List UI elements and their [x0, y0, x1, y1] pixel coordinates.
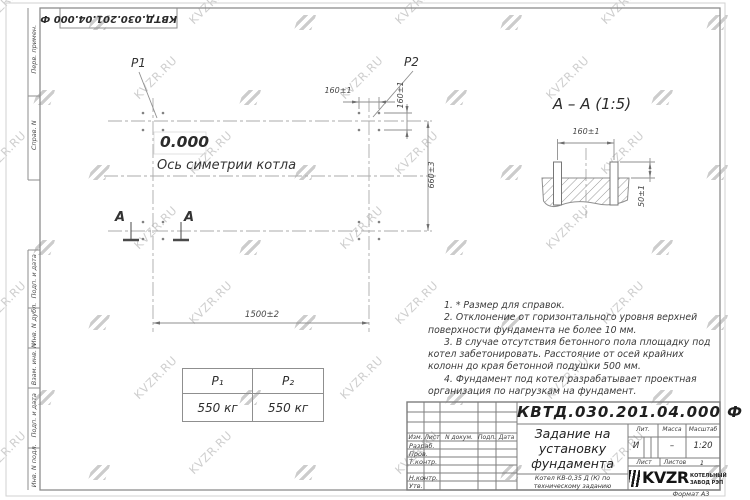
boiler-symmetry-axis-label: Ось симетрии котла — [157, 159, 296, 172]
sheet-frame — [6, 3, 725, 496]
note-3: 3. В случае отсутствия бетонного пола пл… — [428, 337, 720, 374]
section-view-title: А – А (1:5) — [532, 97, 652, 112]
titleblock-doc-number: КВТД.030.201.04.000 Ф — [517, 405, 720, 420]
titleblock-lit-value: И — [628, 442, 644, 451]
titleblock-product-line1: Котел КВ-0,35 Д (К) по — [517, 476, 628, 482]
drawing-sheet: KVZR.RUKVZR.RUKVZR.RUKVZR.RUKVZR.RUKVZR.… — [0, 0, 750, 500]
kvzr-logo-icon — [629, 470, 640, 487]
titleblock-scale-value: 1:20 — [686, 442, 720, 451]
titleblock-col-izm: Изм. — [407, 435, 424, 441]
titleblock-sheets-label: Листов — [662, 460, 688, 466]
load-table-header-p2: P₂ — [253, 369, 323, 394]
load-table: P₁ P₂ 550 кг 550 кг — [182, 368, 324, 422]
load-table-header-p1: P₁ — [183, 369, 253, 394]
plan-view-lines — [104, 71, 436, 332]
titleblock-col-ndokum: N докум. — [440, 435, 478, 441]
kvzr-brand-sub1: КОТЕЛЬНЫЙ — [690, 474, 727, 479]
frame-label-inv-dubl: Инв. N дубл. — [31, 305, 38, 345]
dim-160-top: 160±1 — [320, 87, 356, 95]
elevation-mark: 0.000 — [160, 135, 209, 151]
frame-label-podp-data-1: Подп. и дата — [31, 247, 38, 305]
titleblock-product-line2: техническому заданию — [517, 484, 628, 490]
frame-label-vzam-inv: Взам. инв. N — [31, 345, 38, 385]
titleblock-col-podp: Подп. — [478, 435, 496, 441]
titleblock-sheets-value: 1 — [688, 460, 716, 467]
titleblock-mass-value: – — [658, 442, 686, 451]
load-table-value-p1: 550 кг — [183, 394, 253, 421]
titleblock-lit-label: Лит. — [628, 427, 658, 433]
dim-660: 660±3 — [428, 157, 436, 193]
dim-1500: 1500±2 — [240, 311, 284, 320]
titleblock-sheet-label: Лист — [628, 460, 660, 466]
section-letter-a1: А — [112, 211, 128, 224]
titleblock-row-nkontr: Н.контр. — [409, 475, 438, 482]
titleblock-col-list: Лист — [424, 435, 440, 441]
titleblock-mass-label: Масса — [658, 427, 686, 433]
note-4: 4. Фундамент под котел разрабатывает про… — [428, 374, 720, 399]
titleblock-row-utv: Утв. — [409, 483, 423, 490]
titleblock-row-razrab: Разраб. — [409, 443, 435, 450]
section-dim-50: 50±1 — [638, 181, 646, 211]
load-point-p1-label: P1 — [131, 57, 146, 69]
top-stamp-doc-number: КВТД.030.201.04.000 Ф — [60, 8, 177, 28]
titleblock-scale-label: Масштаб — [686, 427, 720, 433]
frame-label-sprav-n: Справ. N — [31, 93, 38, 177]
drawing-lines — [0, 0, 750, 500]
section-letter-a2: А — [181, 211, 197, 224]
titleblock-row-prov: Пров. — [409, 451, 428, 458]
titleblock-row-tkontr: Т.контр. — [409, 459, 437, 466]
kvzr-brand-text: KVZR — [642, 470, 689, 486]
titleblock-title-line1: Задание на — [517, 428, 628, 441]
note-2: 2. Отклонение от горизонтального уровня … — [428, 312, 720, 337]
titleblock-title-line3: фундамента — [517, 458, 628, 471]
load-table-value-p2: 550 кг — [253, 394, 323, 421]
titleblock-title-line2: установку — [517, 443, 628, 456]
kvzr-brand-sub2: ЗАВОД РЭП — [690, 481, 723, 486]
format-label: Формат А3 — [660, 491, 722, 498]
frame-label-podp-data-2: Подп. и дата — [31, 385, 38, 445]
load-point-p2-label: P2 — [404, 56, 419, 68]
frame-label-perv-primen: Перв. примен. — [31, 5, 38, 93]
note-1: 1. * Размер для справок. — [428, 300, 720, 312]
notes-block: 1. * Размер для справок. 2. Отклонение о… — [428, 300, 720, 398]
frame-label-inv-podl: Инв. N подл. — [31, 445, 38, 487]
section-dim-160: 160±1 — [568, 128, 604, 136]
dim-160-right: 160±1 — [397, 77, 405, 113]
titleblock-col-data: Дата — [496, 435, 517, 441]
